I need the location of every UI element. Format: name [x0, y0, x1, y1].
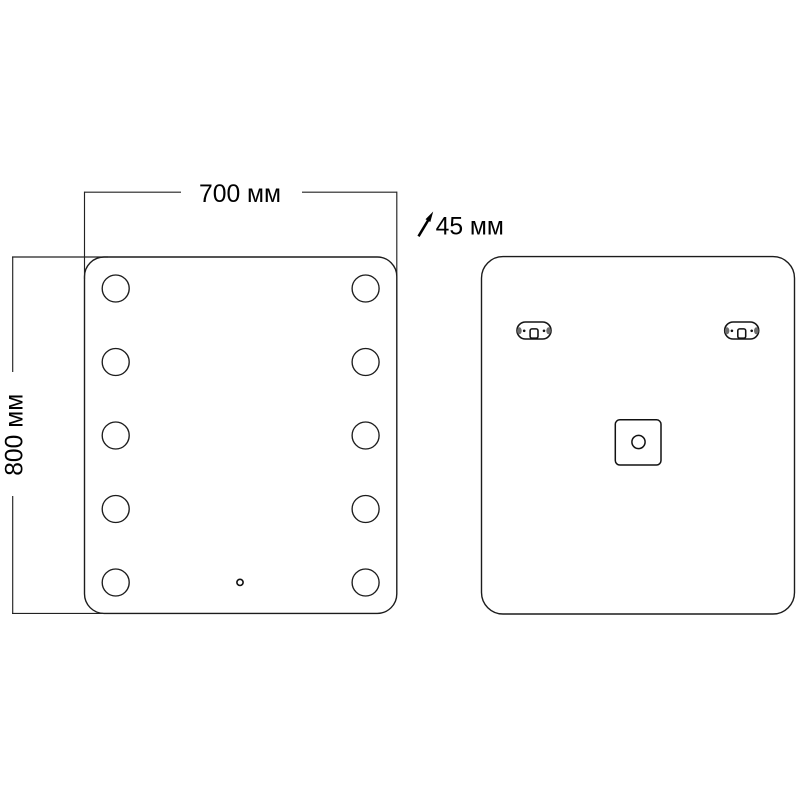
- svg-text:800 мм: 800 мм: [2, 394, 29, 476]
- svg-text:45 мм: 45 мм: [436, 213, 504, 240]
- svg-text:700 мм: 700 мм: [199, 181, 281, 208]
